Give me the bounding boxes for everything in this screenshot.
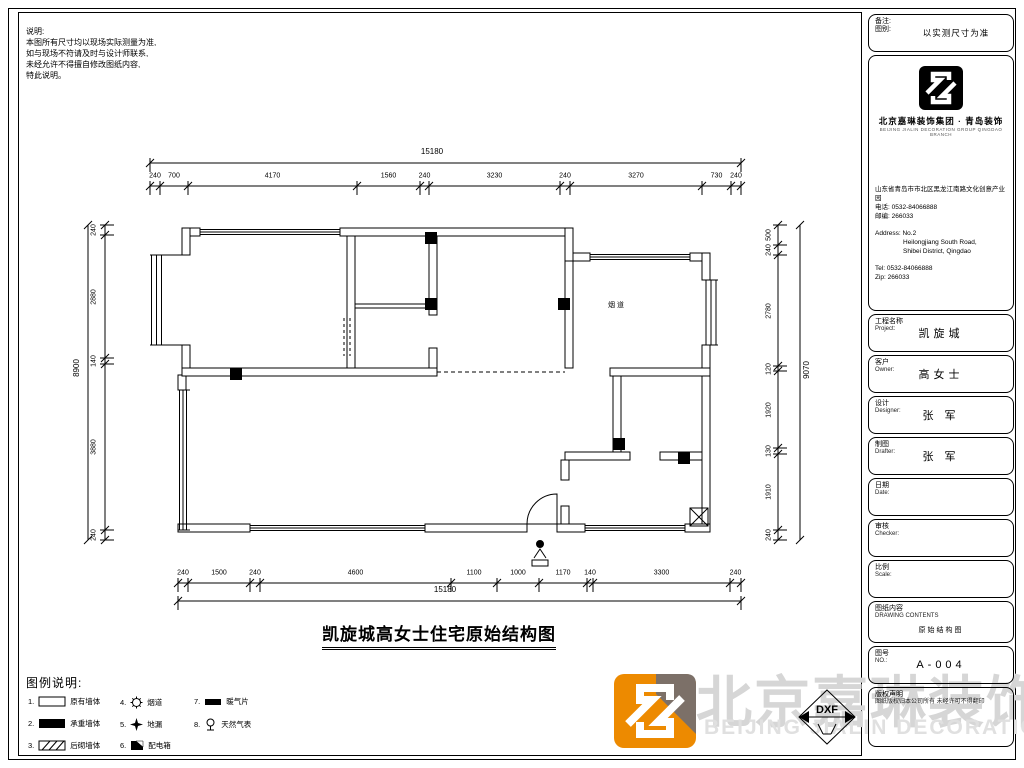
dimension-label: 9070 <box>803 361 811 379</box>
field-label-cn: 图号 <box>875 650 1007 658</box>
field-row-8: 图号NO.:A-004 <box>868 646 1014 684</box>
interior-wall <box>561 460 569 480</box>
wall <box>573 253 590 261</box>
address-en3: Shibei District, Qingdao <box>875 247 1007 256</box>
dimension-label: 130 <box>766 445 773 457</box>
legend-num: 5. <box>120 720 126 729</box>
dimension-label: 3230 <box>487 173 503 180</box>
field-label-en: Checker: <box>875 531 1007 538</box>
dimension-label: 140 <box>91 355 98 367</box>
remark-label: 备注: <box>875 18 1007 26</box>
dimension-label: 3880 <box>91 439 98 455</box>
dimension-label: 4600 <box>348 570 364 577</box>
legend-label: 天然气表 <box>221 719 251 730</box>
column <box>425 232 437 244</box>
field-row-4: 日期Date: <box>868 478 1014 516</box>
field-row-6: 比例Scale: <box>868 560 1014 598</box>
interior-wall <box>565 261 573 368</box>
title-block-rows: 工程名称Project:凯旋城客户Owner:高女士设计Designer:张 军… <box>868 314 1014 754</box>
legend-num: 3. <box>28 741 34 750</box>
wall <box>565 228 573 261</box>
wall <box>178 524 250 532</box>
field-value: A-004 <box>869 659 1013 671</box>
wall-filled-icon <box>38 718 66 729</box>
column <box>678 452 690 464</box>
dimension-label: 1000 <box>510 570 526 577</box>
dimension-label: 8900 <box>73 359 81 377</box>
phone-cn: 电话: 0532-84066888 <box>875 203 1007 212</box>
dimension-label: 240 <box>766 244 773 256</box>
dimension-lines <box>84 158 804 610</box>
dimension-label: 1560 <box>381 173 397 180</box>
field-value: 张 军 <box>869 407 1013 423</box>
dimension-label: 15180 <box>421 148 443 156</box>
address-en2: Heilongjiang South Road, <box>875 238 1007 247</box>
company-logo-mono <box>918 65 964 111</box>
interior-wall <box>429 348 437 368</box>
legend-label: 原有墙体 <box>70 696 100 707</box>
dimension-label: 240 <box>730 173 742 180</box>
dimension-label: 1100 <box>466 570 481 577</box>
field-value: 凯旋城 <box>869 325 1013 341</box>
legend-num: 7. <box>194 697 200 706</box>
dimension-label: 240 <box>177 570 189 577</box>
field-label-en: Date: <box>875 490 1007 497</box>
field-row-5: 审核Checker: <box>868 519 1014 557</box>
field-row-1: 客户Owner:高女士 <box>868 355 1014 393</box>
wall <box>178 375 186 390</box>
dimension-label: 2880 <box>91 289 98 305</box>
dimension-label: 1500 <box>211 570 227 577</box>
wall <box>557 524 585 532</box>
wall-hatched-icon <box>38 740 66 751</box>
field-label-en: 图纸版权归本公司所有 未经许可不得翻印 <box>875 699 1007 706</box>
window-top-right <box>590 253 690 261</box>
dimension-label: 700 <box>168 173 180 180</box>
legend-title: 图例说明: <box>26 674 326 691</box>
wall-outline-icon <box>38 696 66 707</box>
legend-item: 1. 原有墙体 <box>28 696 100 707</box>
dimension-label: 240 <box>149 173 161 180</box>
legend-num: 2. <box>28 719 34 728</box>
legend-num: 8. <box>194 720 200 729</box>
field-value: 原始结构图 <box>869 625 1013 635</box>
dimension-label: 730 <box>711 173 723 180</box>
company-box: 北京嘉琳装饰集团 · 青岛装饰 BEIJING JIALIN DECORATIO… <box>868 55 1014 311</box>
field-row-0: 工程名称Project:凯旋城 <box>868 314 1014 352</box>
legend-label: 配电箱 <box>148 740 171 751</box>
dimension-label: 1920 <box>766 402 773 418</box>
window-bottom-right <box>585 524 685 532</box>
entry-door-swing <box>527 494 557 524</box>
dimension-label: 140 <box>584 570 596 577</box>
bay-window-left <box>150 255 182 345</box>
dimension-label: 240 <box>91 224 98 236</box>
legend-num: 6. <box>120 741 126 750</box>
field-label-cn: 审核 <box>875 523 1007 531</box>
field-row-9: 版权声明图纸版权归本公司所有 未经许可不得翻印 <box>868 687 1014 747</box>
column <box>613 438 625 450</box>
radiator-icon <box>204 698 222 706</box>
interior-wall <box>610 368 710 376</box>
address-cn: 山东省青岛市市北区黑龙江南路文化创意产业园 <box>875 185 1007 203</box>
wall <box>425 524 527 532</box>
dimension-label: 120 <box>766 363 773 375</box>
company-address: 山东省青岛市市北区黑龙江南路文化创意产业园 电话: 0532-84066888 … <box>875 185 1007 282</box>
dimension-label: 15180 <box>434 586 456 594</box>
legend-label: 后砌墙体 <box>70 740 100 751</box>
drain-star-icon <box>130 718 143 731</box>
legend-label: 地漏 <box>147 719 162 730</box>
drawing-sheet: 北京嘉琳装饰 BEIJING JIALIN DECORATION DXF 说明:… <box>0 0 1024 768</box>
company-name: 北京嘉琳装饰集团 · 青岛装饰 <box>875 115 1007 127</box>
legend-num: 1. <box>28 697 34 706</box>
legend-item: 6. 配电箱 <box>120 740 171 751</box>
legend-label: 暖气片 <box>226 696 249 707</box>
wall <box>340 228 573 236</box>
field-value: 高女士 <box>869 366 1013 382</box>
column <box>558 298 570 310</box>
title-block: 备注: 图别: 以实测尺寸为准 北京嘉琳装饰集团 · 青岛装饰 BEIJING … <box>868 14 1014 754</box>
remark-value: 以实测尺寸为准 <box>903 27 1009 39</box>
gas-meter-icon <box>204 718 217 731</box>
legend-item: 8. 天然气表 <box>194 718 251 731</box>
dimension-label: 3270 <box>628 173 644 180</box>
interior-wall <box>565 452 630 460</box>
flue-label: 烟道 <box>608 300 626 310</box>
field-row-2: 设计Designer:张 军 <box>868 396 1014 434</box>
field-label-cn: 图纸内容 <box>875 605 1007 613</box>
dimension-label: 240 <box>419 173 431 180</box>
gear-icon <box>130 696 143 709</box>
dimension-label: 2780 <box>766 303 773 319</box>
legend-label: 烟道 <box>147 697 162 708</box>
balcony-window-left <box>178 390 190 530</box>
walls <box>150 228 718 566</box>
interior-wall <box>561 506 569 524</box>
legend-item: 2. 承重墙体 <box>28 718 100 729</box>
field-label-cn: 版权声明 <box>875 691 1007 699</box>
dimension-label: 240 <box>730 570 742 577</box>
legend-item: 4. 烟道 <box>120 696 162 709</box>
electric-panel-icon <box>130 740 144 751</box>
plan-title: 凯旋城高女士住宅原始结构图 <box>322 620 556 650</box>
field-value: 张 军 <box>869 448 1013 464</box>
dimension-label: 240 <box>559 173 571 180</box>
window-top-left <box>200 228 340 236</box>
interior-wall <box>182 368 437 376</box>
stamp-text: DXF <box>816 704 838 716</box>
dimension-label: 1910 <box>766 484 773 500</box>
closet-lines <box>355 304 429 308</box>
dimension-label: 4170 <box>265 173 281 180</box>
dimension-label: 3300 <box>654 570 670 577</box>
address-en: Address: No.2 <box>875 229 1007 238</box>
legend-num: 4. <box>120 698 126 707</box>
dimension-label: 240 <box>766 529 773 541</box>
zip-en: Zip: 266033 <box>875 273 1007 282</box>
dxf-stamp: DXF <box>796 688 858 746</box>
wall <box>685 524 710 532</box>
field-label-cn: 比例 <box>875 564 1007 572</box>
wall <box>182 228 190 255</box>
column <box>230 368 242 380</box>
entrance-symbol <box>532 541 548 567</box>
zip-cn: 邮编: 266033 <box>875 212 1007 221</box>
tel-en: Tel: 0532-84066888 <box>875 264 1007 273</box>
legend-item: 3. 后砌墙体 <box>28 740 100 751</box>
field-row-3: 制图Drafter:张 军 <box>868 437 1014 475</box>
remark-box: 备注: 图别: 以实测尺寸为准 <box>868 14 1014 52</box>
window-bottom-left <box>250 524 425 532</box>
interior-wall <box>347 236 355 368</box>
column <box>425 298 437 310</box>
legend: 图例说明: 1. 原有墙体 2. 承重墙体 3. 后砌墙体 4. 烟道 5. 地… <box>26 674 326 750</box>
legend-label: 承重墙体 <box>70 718 100 729</box>
wall <box>702 253 710 280</box>
field-label-en: Scale: <box>875 572 1007 579</box>
field-label-en: DRAWING CONTENTS <box>875 613 1007 620</box>
bay-window-right <box>702 280 718 345</box>
dimension-label: 240 <box>91 529 98 541</box>
company-name-en: BEIJING JIALIN DECORATION GROUP QINGDAO … <box>875 127 1007 137</box>
legend-item: 7. 暖气片 <box>194 696 249 707</box>
dimension-label: 500 <box>766 229 773 241</box>
dimension-label: 240 <box>249 570 261 577</box>
field-row-7: 图纸内容DRAWING CONTENTS原始结构图 <box>868 601 1014 643</box>
legend-item: 5. 地漏 <box>120 718 162 731</box>
dimension-label: 1170 <box>555 570 570 577</box>
field-label-cn: 日期 <box>875 482 1007 490</box>
